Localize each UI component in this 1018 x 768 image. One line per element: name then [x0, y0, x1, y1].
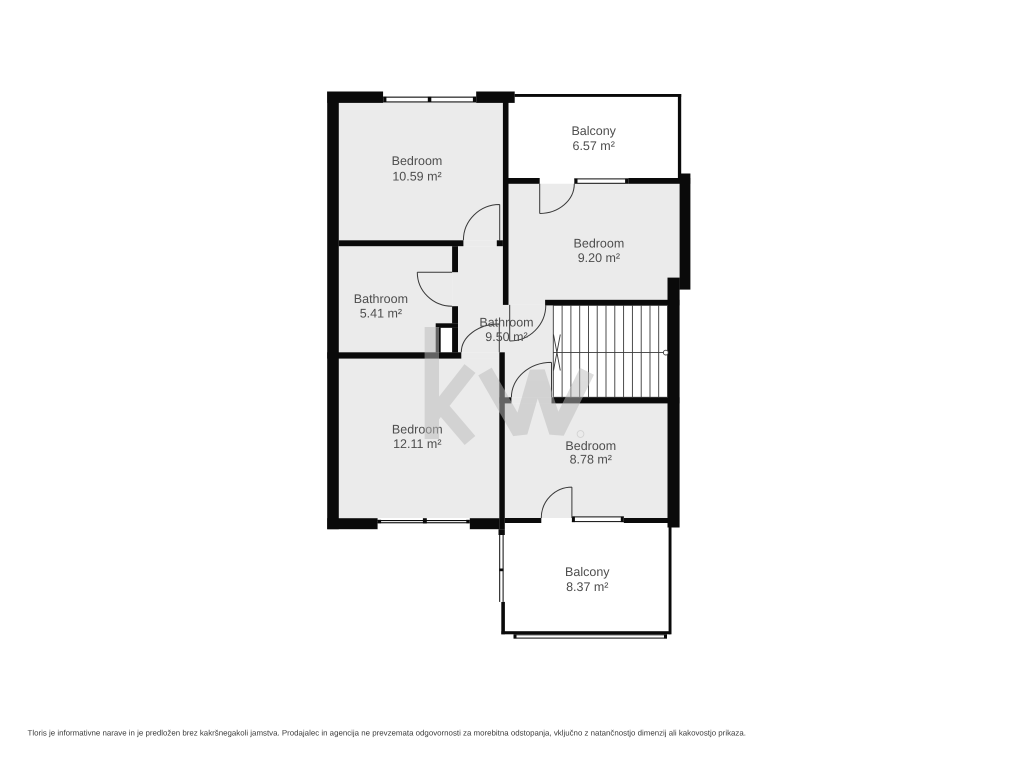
svg-text:Bathroom: Bathroom — [354, 292, 408, 306]
svg-text:10.59 m²: 10.59 m² — [392, 169, 441, 183]
svg-text:Balcony: Balcony — [565, 565, 610, 579]
svg-text:9.20 m²: 9.20 m² — [578, 251, 620, 265]
svg-text:8.78 m²: 8.78 m² — [570, 453, 612, 467]
svg-text:Tloris je informativne narave: Tloris je informativne narave in je pred… — [28, 728, 746, 737]
svg-text:Bathroom: Bathroom — [479, 315, 533, 329]
svg-text:8.37 m²: 8.37 m² — [566, 580, 608, 594]
svg-text:6.57 m²: 6.57 m² — [573, 139, 615, 153]
svg-text:12.11 m²: 12.11 m² — [393, 437, 441, 451]
svg-text:Bedroom: Bedroom — [574, 237, 625, 251]
svg-text:Bedroom: Bedroom — [392, 154, 443, 168]
svg-text:Bedroom: Bedroom — [565, 439, 616, 453]
svg-text:Balcony: Balcony — [571, 124, 616, 138]
svg-text:5.41 m²: 5.41 m² — [360, 306, 402, 320]
svg-text:9.50 m²: 9.50 m² — [485, 330, 527, 344]
